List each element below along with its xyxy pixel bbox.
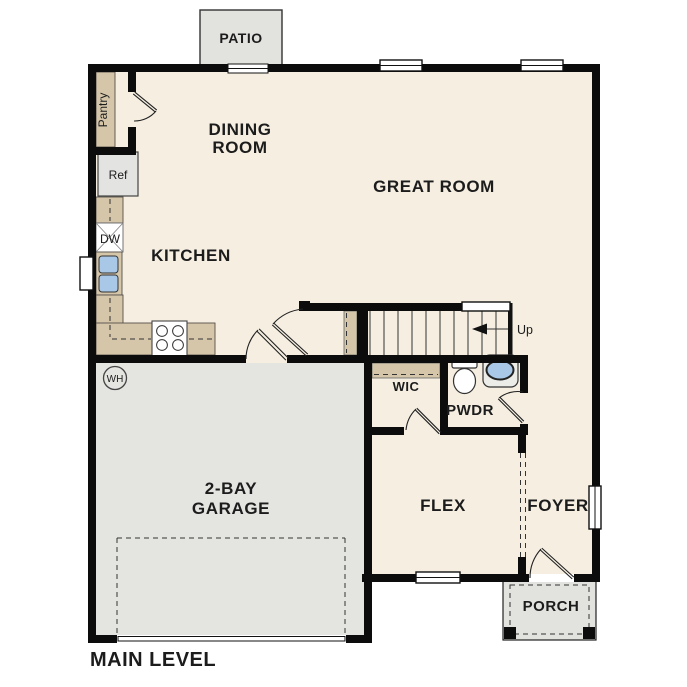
wall-wic-pwdr-divider bbox=[440, 363, 448, 435]
garage-label-line1: 2-BAY bbox=[205, 479, 258, 498]
front-door-opening bbox=[529, 574, 574, 582]
water-heater-label: WH bbox=[107, 374, 124, 385]
kitchen-label: KITCHEN bbox=[151, 246, 231, 265]
wall-pantry-stub-top bbox=[128, 72, 136, 92]
wall-pwdr-right-lower bbox=[520, 424, 528, 435]
dining-room-label-line2: ROOM bbox=[212, 138, 267, 157]
lavatory-bowl bbox=[487, 361, 514, 380]
refrigerator-label: Ref bbox=[109, 168, 128, 182]
patio-label: PATIO bbox=[219, 30, 262, 46]
window-greatroom-top-left bbox=[380, 60, 422, 71]
wall-foyer-stub-top bbox=[518, 435, 526, 453]
wall-foyer-stub-bottom bbox=[518, 557, 526, 574]
wall-stair-top bbox=[302, 303, 463, 311]
wall-flex-top-right bbox=[440, 427, 528, 435]
wall-flex-top-left bbox=[364, 427, 404, 435]
window-greatroom-top-right bbox=[521, 60, 563, 71]
wall-pwdr-right-upper bbox=[520, 363, 528, 393]
dishwasher-label: DW bbox=[100, 232, 121, 246]
porch-label: PORCH bbox=[523, 598, 580, 615]
garage-overhead-door bbox=[118, 637, 345, 642]
stair-side-wall bbox=[357, 311, 368, 355]
dining-room-label-line1: DINING bbox=[208, 120, 271, 139]
wall-pantry-bottom bbox=[88, 147, 136, 155]
great-room-label: GREAT ROOM bbox=[373, 177, 495, 196]
sink-basin-top bbox=[99, 256, 118, 273]
kitchen-sink bbox=[96, 252, 122, 295]
wall-garage-top-right bbox=[287, 355, 528, 363]
stair-landing-edge bbox=[462, 302, 510, 311]
floorplan-drawing: PATIO Pantry DINING ROOM GREAT ROOM KITC… bbox=[0, 0, 687, 687]
range-stove bbox=[152, 321, 187, 356]
sliding-patio-door bbox=[228, 64, 268, 73]
powder-room-label: PWDR bbox=[446, 402, 494, 419]
porch-post-right bbox=[583, 627, 595, 639]
window-kitchen-left bbox=[80, 257, 93, 290]
understair-closet bbox=[344, 311, 357, 355]
wic-shelf-group bbox=[372, 363, 440, 378]
porch-post-left bbox=[504, 627, 516, 639]
wall-garage-right bbox=[364, 355, 372, 643]
wic-shelf bbox=[372, 363, 440, 378]
level-title: MAIN LEVEL bbox=[90, 649, 216, 671]
wic-label: WIC bbox=[393, 379, 420, 394]
garage-label-line2: GARAGE bbox=[192, 499, 270, 518]
flex-label: FLEX bbox=[420, 496, 466, 515]
sink-basin-bottom bbox=[99, 275, 118, 292]
window-flex-bottom bbox=[416, 572, 460, 583]
stairs-up-label: Up bbox=[517, 323, 533, 337]
window-foyer-right bbox=[589, 486, 601, 529]
foyer-label: FOYER bbox=[527, 496, 589, 515]
wall-garage-top-left bbox=[88, 355, 246, 363]
wall-pantry-stub-bottom bbox=[128, 127, 136, 147]
floorplan-page: PATIO Pantry DINING ROOM GREAT ROOM KITC… bbox=[0, 0, 687, 687]
pantry-label: Pantry bbox=[96, 93, 110, 128]
